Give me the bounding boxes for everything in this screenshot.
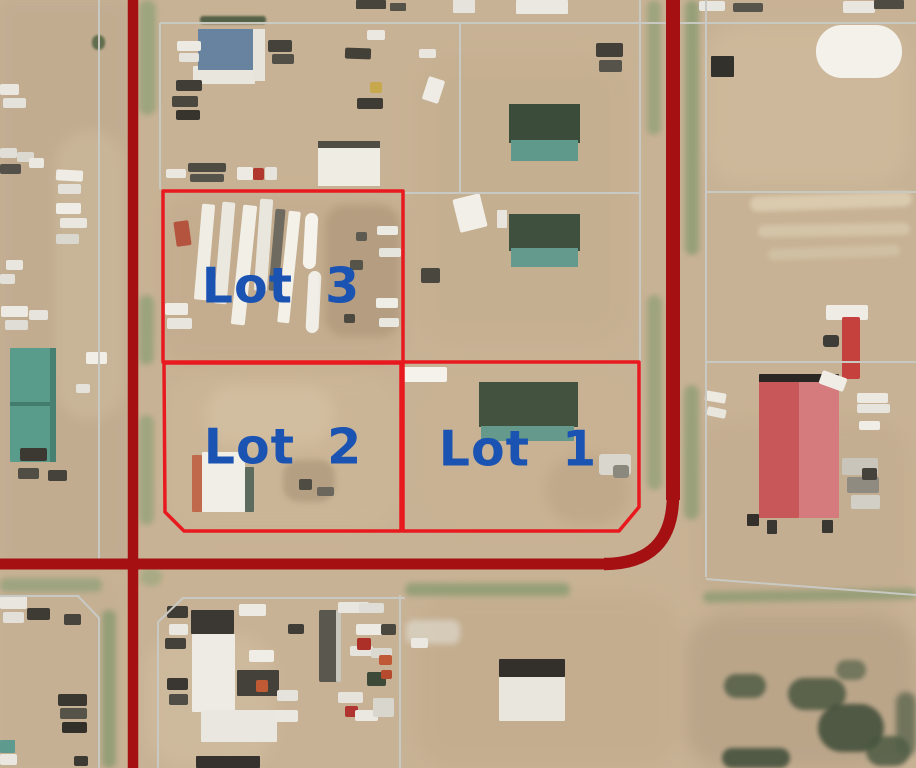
map-feature xyxy=(62,722,87,733)
map-feature xyxy=(56,169,84,181)
map-feature xyxy=(647,295,662,490)
map-feature xyxy=(29,158,44,168)
map-feature xyxy=(27,608,50,620)
map-feature xyxy=(843,1,875,13)
map-feature xyxy=(511,140,578,161)
map-feature xyxy=(750,191,912,212)
map-feature xyxy=(511,248,578,267)
map-feature xyxy=(299,479,312,490)
map-feature xyxy=(379,248,401,257)
map-feature xyxy=(56,234,79,244)
map-feature xyxy=(379,318,399,327)
map-feature xyxy=(92,35,105,50)
map-feature xyxy=(402,367,447,382)
map-feature xyxy=(599,60,622,72)
map-feature xyxy=(0,274,15,284)
map-feature xyxy=(356,0,386,9)
map-feature xyxy=(176,80,202,91)
map-feature xyxy=(857,404,890,413)
map-feature xyxy=(1,306,28,317)
map-feature xyxy=(419,49,436,58)
map-feature xyxy=(357,98,383,109)
map-feature xyxy=(799,382,839,518)
map-feature xyxy=(18,468,39,479)
lot-label-3: Lot 3 xyxy=(202,258,360,315)
map-feature xyxy=(733,3,763,12)
map-feature xyxy=(169,624,188,635)
map-feature xyxy=(169,694,188,705)
map-feature xyxy=(5,320,28,330)
map-feature xyxy=(0,754,17,765)
map-feature xyxy=(874,0,904,9)
lot-label-1: Lot 1 xyxy=(439,421,597,478)
map-feature xyxy=(497,210,507,228)
map-feature xyxy=(139,295,154,365)
map-feature xyxy=(20,448,47,461)
map-feature xyxy=(747,514,759,526)
map-feature xyxy=(56,203,81,214)
map-feature xyxy=(48,470,67,481)
map-feature xyxy=(836,660,866,680)
map-feature xyxy=(377,226,398,235)
map-feature xyxy=(74,756,88,766)
map-feature xyxy=(0,148,17,158)
map-feature xyxy=(758,223,910,238)
map-feature xyxy=(64,614,81,625)
map-feature xyxy=(381,624,396,635)
map-feature xyxy=(165,638,186,649)
aerial-map: Lot 1 Lot 2 Lot 3 xyxy=(0,0,916,768)
map-feature xyxy=(509,104,580,143)
map-feature xyxy=(86,352,107,364)
map-feature xyxy=(415,55,630,345)
map-feature xyxy=(0,164,21,174)
map-feature xyxy=(60,708,87,719)
map-feature xyxy=(759,382,799,518)
map-feature xyxy=(265,167,277,180)
map-feature xyxy=(0,740,15,753)
map-feature xyxy=(272,54,294,64)
map-feature xyxy=(859,421,880,430)
map-feature xyxy=(704,390,726,403)
map-feature xyxy=(499,659,565,677)
map-feature xyxy=(192,455,202,512)
map-feature xyxy=(50,348,56,462)
map-feature xyxy=(390,3,406,11)
map-feature xyxy=(318,141,380,148)
map-feature xyxy=(359,603,384,613)
map-feature xyxy=(344,314,355,323)
map-feature xyxy=(711,56,734,77)
map-feature xyxy=(647,0,661,135)
map-feature xyxy=(196,756,260,768)
map-feature xyxy=(3,612,24,623)
map-feature xyxy=(0,84,19,95)
map-feature xyxy=(722,748,790,768)
map-feature xyxy=(857,393,888,403)
map-feature xyxy=(29,310,48,320)
map-feature xyxy=(816,25,902,78)
map-feature xyxy=(405,583,570,596)
map-feature xyxy=(684,385,699,520)
map-feature xyxy=(357,638,371,650)
map-feature xyxy=(851,495,880,509)
map-feature xyxy=(685,0,699,255)
map-feature xyxy=(516,0,568,14)
map-feature xyxy=(249,650,274,662)
map-feature xyxy=(6,260,23,270)
map-feature xyxy=(317,487,334,496)
map-feature xyxy=(167,678,188,690)
map-feature xyxy=(102,610,116,768)
map-feature xyxy=(0,578,102,592)
map-feature xyxy=(896,692,916,756)
map-feature xyxy=(237,167,253,180)
map-feature xyxy=(140,568,162,586)
map-feature xyxy=(190,174,224,182)
map-feature xyxy=(277,690,298,701)
map-feature xyxy=(373,698,394,717)
map-feature xyxy=(0,596,27,609)
map-feature xyxy=(842,317,860,379)
map-feature xyxy=(167,606,188,618)
map-feature xyxy=(139,0,156,115)
map-feature xyxy=(376,298,398,308)
map-feature xyxy=(177,41,201,51)
map-feature xyxy=(823,335,839,347)
map-feature xyxy=(275,710,298,722)
map-feature xyxy=(188,163,226,172)
map-feature xyxy=(253,168,264,180)
map-feature xyxy=(768,245,900,261)
map-feature xyxy=(509,214,580,251)
map-feature xyxy=(167,318,192,329)
map-feature xyxy=(201,710,277,742)
map-feature xyxy=(165,303,188,315)
map-feature xyxy=(139,415,154,525)
map-feature xyxy=(58,694,87,706)
map-feature xyxy=(453,0,475,13)
map-feature xyxy=(356,232,367,241)
map-feature xyxy=(179,53,199,62)
map-feature xyxy=(367,30,385,40)
map-feature xyxy=(200,16,266,24)
map-feature xyxy=(166,169,186,178)
map-feature xyxy=(239,604,266,616)
map-feature xyxy=(198,29,254,70)
map-feature xyxy=(172,96,198,107)
map-feature xyxy=(613,465,629,478)
map-feature xyxy=(706,406,726,419)
map-feature xyxy=(288,624,304,634)
map-feature xyxy=(862,468,877,480)
map-feature xyxy=(76,384,90,393)
map-feature xyxy=(724,674,766,698)
map-feature xyxy=(822,520,833,533)
map-feature xyxy=(60,218,87,228)
map-feature xyxy=(176,110,200,120)
map-feature xyxy=(381,670,392,679)
map-feature xyxy=(345,48,371,60)
map-feature xyxy=(338,692,363,703)
map-feature xyxy=(499,677,565,721)
map-feature xyxy=(268,40,292,52)
map-feature xyxy=(192,634,235,712)
map-feature xyxy=(421,268,440,283)
map-feature xyxy=(596,43,623,57)
map-feature xyxy=(411,638,428,648)
map-feature xyxy=(370,82,382,93)
map-feature xyxy=(256,680,268,692)
map-feature xyxy=(336,610,341,682)
lot-label-2: Lot 2 xyxy=(204,419,362,476)
map-feature xyxy=(191,610,234,634)
map-feature xyxy=(699,1,725,11)
map-feature xyxy=(3,98,26,108)
map-feature xyxy=(379,655,392,665)
map-feature xyxy=(58,184,81,194)
map-feature xyxy=(767,520,777,534)
map-feature xyxy=(253,29,265,81)
